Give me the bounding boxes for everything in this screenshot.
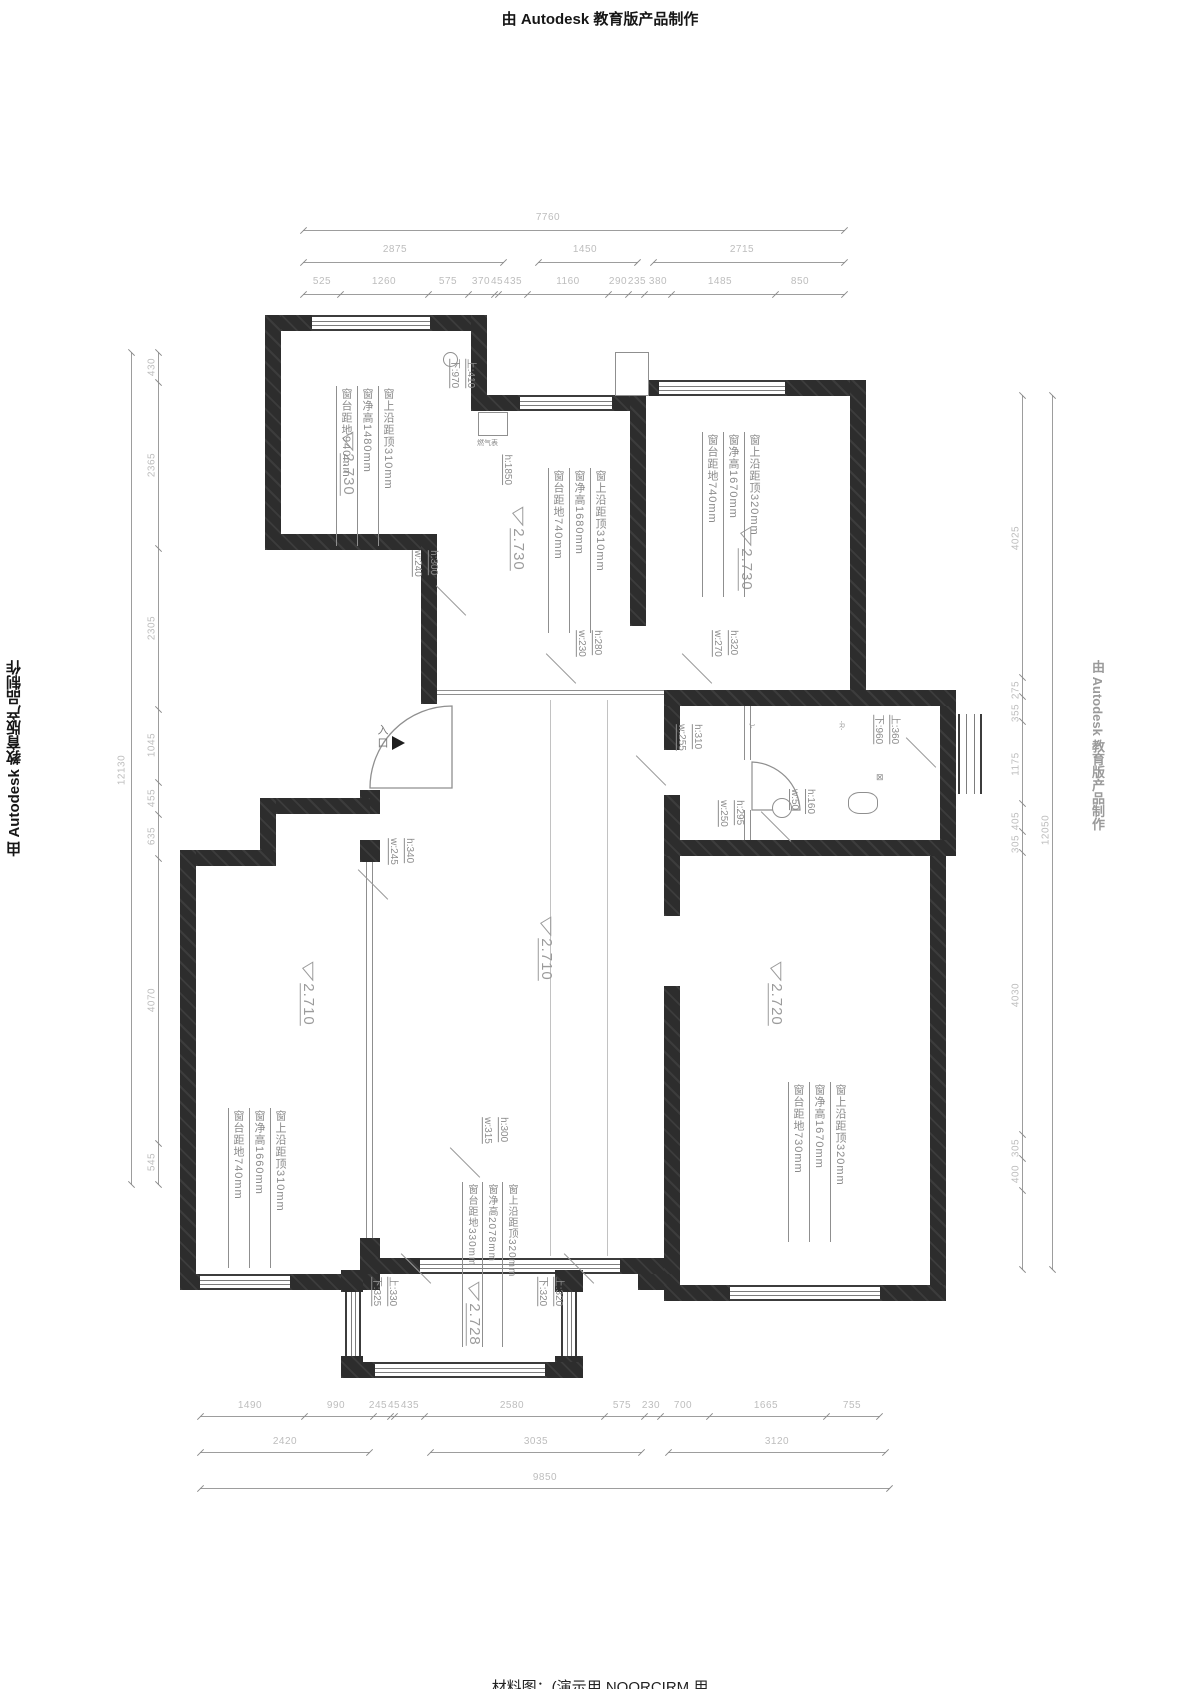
level-marker: 2.720 [768, 961, 785, 1026]
window-note: 窗上沿距顶310mm 窗净高1660mm 窗台距地740mm [228, 1108, 291, 1268]
level-flag-icon [302, 961, 314, 981]
dim-label: 430 [147, 358, 158, 376]
floor-plan-page: 由 Autodesk 教育版产品制作 由 Autodesk 教育版产品制作 由 … [0, 0, 1200, 1689]
dim-label: 1490 [238, 1400, 262, 1411]
bottom-caption: 材料图：(演示用 NOORCIRM 用 [492, 1676, 709, 1689]
dim-line [430, 1452, 642, 1453]
opening-note: h:295 w:250 [716, 800, 747, 827]
opening-note: 上:360 下:960 [871, 715, 902, 744]
dim-label: 455 [147, 789, 158, 807]
window [520, 395, 612, 411]
dim-label: 12050 [1041, 815, 1052, 845]
wall-segment [664, 690, 956, 706]
window [375, 1362, 545, 1378]
watermark-left: 由 Autodesk 教育版产品制作 [4, 660, 25, 857]
dim-label: 4030 [1011, 983, 1022, 1007]
boiler-box-icon [615, 352, 649, 396]
dim-label: 235 [628, 276, 646, 287]
watermark-right: 由 Autodesk 教育版产品制作 [1088, 660, 1107, 830]
opening-note: h:340 w:245 [386, 838, 417, 865]
entrance-arrow-icon [392, 736, 405, 750]
wall-segment [341, 1362, 375, 1378]
dim-label: 635 [147, 827, 158, 845]
opening-note: h:300 w:240 [410, 550, 441, 577]
wall-segment [360, 1238, 380, 1258]
window-note: 窗上沿距顶320mm 窗净高1670mm 窗台距地740mm [702, 432, 765, 597]
dim-label: 45 [388, 1400, 400, 1411]
entrance-label: 入口 [374, 724, 390, 750]
wall-segment [341, 1270, 363, 1292]
dim-label: 245 [369, 1400, 387, 1411]
wall-segment [630, 396, 646, 626]
dim-label: 230 [642, 1400, 660, 1411]
dim-label: 4025 [1011, 526, 1022, 550]
opening-note: 上:320 下:320 [535, 1277, 566, 1306]
dim-label: 3120 [765, 1436, 789, 1447]
dim-label: 45 [491, 276, 503, 287]
dim-line [303, 262, 504, 263]
pipe-code-r: -R- [837, 721, 844, 731]
dim-label: 575 [613, 1400, 631, 1411]
dim-line [131, 352, 132, 1185]
wall-segment [265, 315, 281, 550]
opening-note: h:300 w:315 [480, 1117, 511, 1144]
dim-label: 3035 [524, 1436, 548, 1447]
window-note: 窗上沿距顶310mm 窗净高1480mm 窗台距地940mm [336, 386, 399, 546]
living-bl-partition [366, 862, 373, 1258]
dim-label: 4070 [147, 988, 158, 1012]
window [730, 1285, 880, 1301]
wall-segment [260, 798, 370, 814]
dim-label: 435 [401, 1400, 419, 1411]
window [659, 380, 785, 396]
opening-note: 上:410 下:970 [447, 359, 478, 388]
window-bay [958, 714, 982, 794]
dim-label: 7760 [536, 212, 560, 223]
wall-segment [664, 1285, 730, 1301]
dim-line [158, 352, 159, 1185]
dim-label: 2420 [273, 1436, 297, 1447]
wall-segment [360, 840, 380, 862]
dim-label: 525 [313, 276, 331, 287]
dim-label: 700 [674, 1400, 692, 1411]
dim-label: 1665 [754, 1400, 778, 1411]
dim-label: 9850 [533, 1472, 557, 1483]
wall-segment [290, 1274, 380, 1290]
dim-label: 370 [472, 276, 490, 287]
wall-segment [850, 380, 866, 706]
dim-line [653, 262, 845, 263]
dim-line [668, 1452, 886, 1453]
window-note: 窗上沿距顶320mm 窗净高2078mm 窗台距地330mm [462, 1182, 522, 1347]
opening-note: h:1850 [500, 454, 516, 485]
level-marker: 2.710 [538, 916, 555, 981]
dim-line [538, 262, 638, 263]
dim-label: 1160 [556, 276, 580, 287]
dim-label: 290 [609, 276, 627, 287]
bath-partition [744, 706, 751, 760]
window [312, 315, 430, 331]
pipe-code-j: J- [747, 723, 754, 729]
dim-label: 2365 [147, 453, 158, 477]
opening-beam-line [437, 690, 664, 695]
wall-segment [471, 395, 520, 411]
level-marker: 2.710 [300, 961, 317, 1026]
gas-meter-box-icon [478, 412, 508, 436]
wall-segment [930, 856, 946, 1290]
dim-label: 435 [504, 276, 522, 287]
window-note: 窗上沿距顶320mm 窗净高1670mm 窗台距地730mm [788, 1082, 851, 1242]
level-marker: 2.730 [510, 506, 527, 571]
wall-segment [180, 1274, 200, 1290]
dim-label: 2305 [147, 616, 158, 640]
dim-label: 2580 [500, 1400, 524, 1411]
dim-label: 1485 [708, 276, 732, 287]
window [345, 1292, 361, 1358]
wall-segment [940, 706, 956, 856]
wall-segment [180, 850, 196, 1290]
dim-line [1052, 395, 1053, 1270]
dim-label: 2715 [730, 244, 754, 255]
dim-label: 850 [791, 276, 809, 287]
wall-segment [360, 1258, 420, 1274]
opening-note: h:160 w:50 [787, 789, 818, 814]
dim-label: 12130 [117, 755, 128, 785]
window-note: 窗上沿距顶310mm 窗净高1680mm 窗台距地740mm [548, 468, 611, 633]
dim-line [303, 294, 845, 295]
wall-segment [880, 1285, 946, 1301]
level-flag-icon [540, 916, 552, 936]
dim-label: 545 [147, 1153, 158, 1171]
wall-segment [664, 840, 956, 856]
wall-segment [664, 986, 680, 1286]
dim-label: 380 [649, 276, 667, 287]
reference-line [607, 700, 608, 1256]
toilet-icon [848, 792, 878, 814]
watermark-top: 由 Autodesk 教育版产品制作 [502, 8, 699, 29]
window [200, 1274, 290, 1290]
opening-note: h:310 w:255 [674, 724, 705, 751]
dim-label: 990 [327, 1400, 345, 1411]
dim-line [303, 230, 845, 231]
opening-note: 上:330 下:325 [369, 1277, 400, 1306]
dim-label: 1175 [1011, 752, 1022, 776]
opening-note: h:280 w:230 [574, 630, 605, 657]
dim-label: 755 [843, 1400, 861, 1411]
wall-segment [664, 856, 680, 916]
dim-label: 1045 [147, 733, 158, 757]
dim-label: 1260 [372, 276, 396, 287]
level-flag-icon [512, 506, 524, 526]
dim-label: 2875 [383, 244, 407, 255]
wall-segment [545, 1362, 583, 1378]
dim-label: 275 [1011, 681, 1022, 699]
gas-meter-label: 燃气表 [477, 438, 498, 448]
dim-line [200, 1452, 370, 1453]
valve-icon: ⊠ [876, 772, 884, 783]
level-flag-icon [770, 961, 782, 981]
opening-note: h:320 w:270 [710, 630, 741, 657]
dim-line [200, 1488, 890, 1489]
dim-label: 400 [1011, 1165, 1022, 1183]
dim-label: 1450 [573, 244, 597, 255]
dim-label: 575 [439, 276, 457, 287]
